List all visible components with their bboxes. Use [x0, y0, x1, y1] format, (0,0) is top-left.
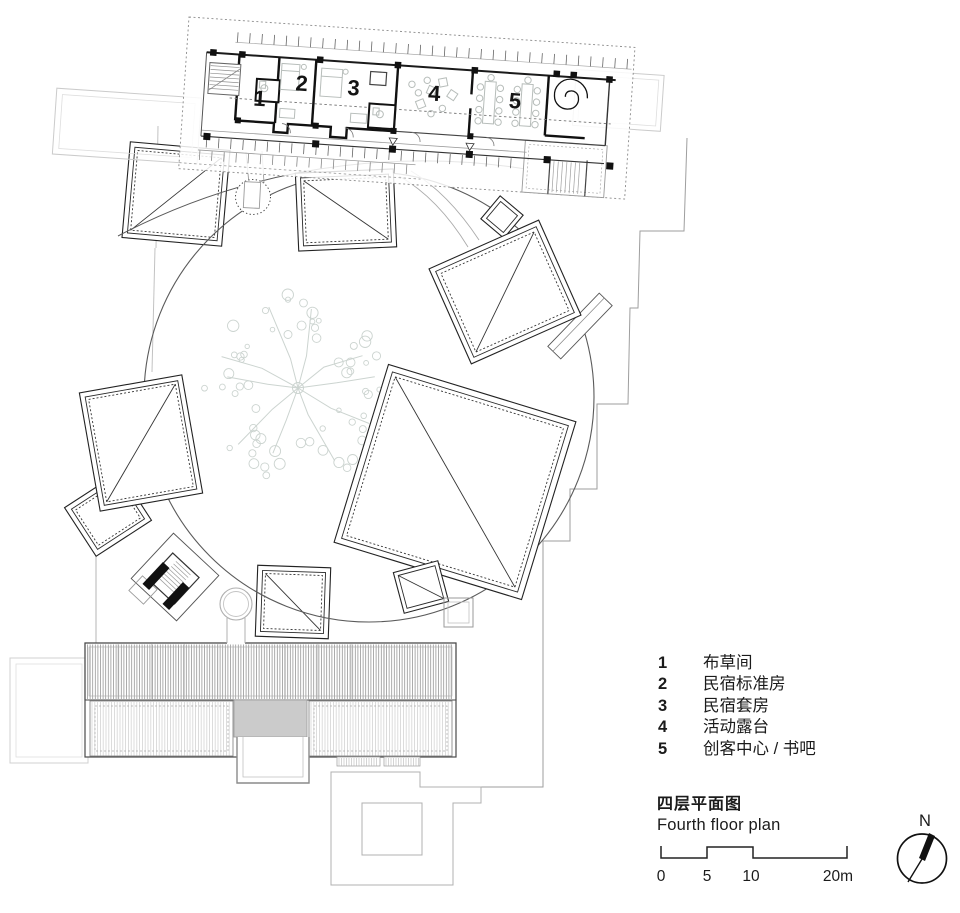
left-staircase — [208, 63, 241, 96]
legend-item-label: 活动露台 — [703, 717, 769, 738]
bathroom — [368, 103, 396, 129]
legend-item-number: 5 — [658, 739, 703, 760]
small-square-planter — [444, 598, 473, 627]
legend-item: 5 创客中心 / 书吧 — [658, 739, 816, 760]
legend-item-number: 4 — [658, 717, 703, 738]
room-number-1: 1 — [253, 86, 267, 112]
stair-pavilion — [129, 533, 219, 621]
round-tower-bottom — [220, 588, 252, 644]
pavilion-roof-bottom-middle — [255, 565, 330, 639]
scale-bar: 0 5 10 20m — [657, 846, 853, 885]
legend-item-number: 1 — [658, 653, 703, 674]
room-number-5: 5 — [508, 88, 522, 114]
room-number-3: 3 — [347, 75, 361, 101]
legend-item-number: 3 — [658, 696, 703, 717]
scale-label-10: 10 — [742, 868, 760, 885]
legend: 1 布草间 2 民宿标准房 3 民宿套房 4 活动露台 5 创客中心 / 书吧 — [658, 653, 816, 760]
legend-item: 1 布草间 — [658, 653, 816, 674]
legend-item-label: 创客中心 / 书吧 — [703, 739, 816, 760]
scale-label-20: 20m — [823, 868, 853, 885]
scale-label-0: 0 — [657, 868, 666, 885]
north-arrow: N — [898, 812, 947, 883]
pavilion-roof-left — [79, 375, 202, 511]
roof-hatch-dark — [88, 645, 452, 700]
legend-item: 3 民宿套房 — [658, 696, 816, 717]
title-block: 四层平面图 Fourth floor plan — [657, 795, 781, 836]
north-label: N — [919, 812, 931, 830]
courtyard-bottom-right — [331, 772, 481, 885]
north-needle — [919, 833, 935, 861]
legend-item-number: 2 — [658, 674, 703, 695]
plan-title-zh: 四层平面图 — [657, 795, 781, 815]
room-number-4: 4 — [427, 80, 442, 106]
legend-item-label: 民宿套房 — [703, 696, 769, 717]
faint-roof-outline — [10, 658, 88, 763]
floor-plan-canvas: 1 2 3 4 5 0 5 10 20m N — [0, 0, 960, 913]
roof-terrace-gray — [234, 700, 307, 737]
floor-plan-page: 1 2 3 4 5 0 5 10 20m N 1 布草间 2 民宿标准房 3 民… — [0, 0, 960, 913]
room-number-2: 2 — [295, 70, 309, 96]
tree — [202, 289, 382, 479]
legend-item-label: 布草间 — [703, 653, 753, 674]
legend-item: 4 活动露台 — [658, 717, 816, 738]
scale-label-5: 5 — [703, 868, 712, 885]
dorm-building — [85, 643, 456, 783]
pavilion-roof-small-mid — [393, 561, 448, 613]
plan-title-en: Fourth floor plan — [657, 815, 781, 836]
right-terrace — [522, 140, 607, 197]
legend-item: 2 民宿标准房 — [658, 674, 816, 695]
entrance-porch — [237, 737, 309, 783]
legend-item-label: 民宿标准房 — [703, 674, 786, 695]
pavilion-roof-big-center — [334, 364, 576, 599]
